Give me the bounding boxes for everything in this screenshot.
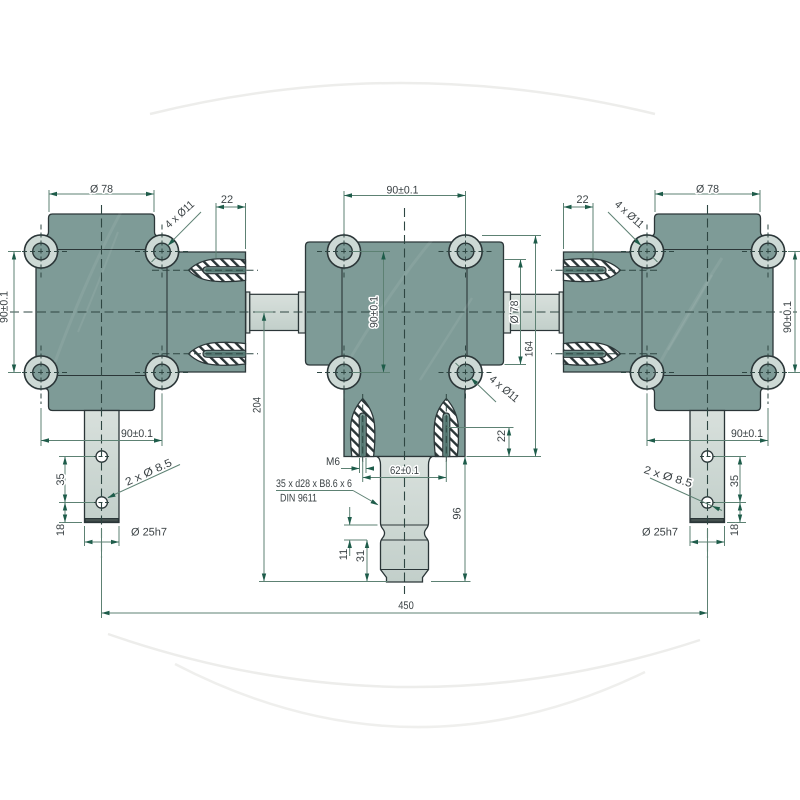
svg-text:35: 35	[55, 473, 67, 485]
svg-text:22: 22	[496, 430, 508, 442]
svg-text:18: 18	[729, 524, 741, 536]
svg-text:Ø 78: Ø 78	[90, 183, 113, 195]
svg-text:62±0.1: 62±0.1	[390, 465, 419, 477]
svg-text:204: 204	[252, 397, 264, 413]
svg-text:90±0.1: 90±0.1	[369, 296, 381, 328]
svg-text:M6: M6	[326, 456, 340, 468]
svg-text:450: 450	[398, 600, 414, 612]
svg-text:Ø 78: Ø 78	[696, 183, 719, 195]
svg-text:90±0.1: 90±0.1	[121, 428, 153, 440]
svg-text:164: 164	[524, 341, 536, 357]
svg-text:90±0.1: 90±0.1	[0, 291, 11, 323]
svg-text:11: 11	[338, 549, 350, 560]
svg-text:18: 18	[55, 524, 67, 536]
svg-text:90±0.1: 90±0.1	[731, 428, 763, 440]
svg-text:Ø 25h7: Ø 25h7	[642, 527, 678, 539]
svg-text:Ø 25h7: Ø 25h7	[131, 527, 167, 539]
svg-text:90±0.1: 90±0.1	[387, 185, 419, 197]
svg-text:22: 22	[576, 194, 588, 206]
svg-text:22: 22	[221, 194, 233, 206]
svg-text:DIN 9611: DIN 9611	[280, 493, 317, 505]
svg-text:35: 35	[729, 475, 741, 487]
svg-text:Ø 78: Ø 78	[509, 301, 521, 324]
svg-text:90±0.1: 90±0.1	[782, 301, 794, 333]
svg-text:35 x d28 x B8.6 x 6: 35 x d28 x B8.6 x 6	[276, 478, 352, 490]
svg-text:31: 31	[355, 550, 367, 562]
svg-text:96: 96	[452, 507, 464, 519]
